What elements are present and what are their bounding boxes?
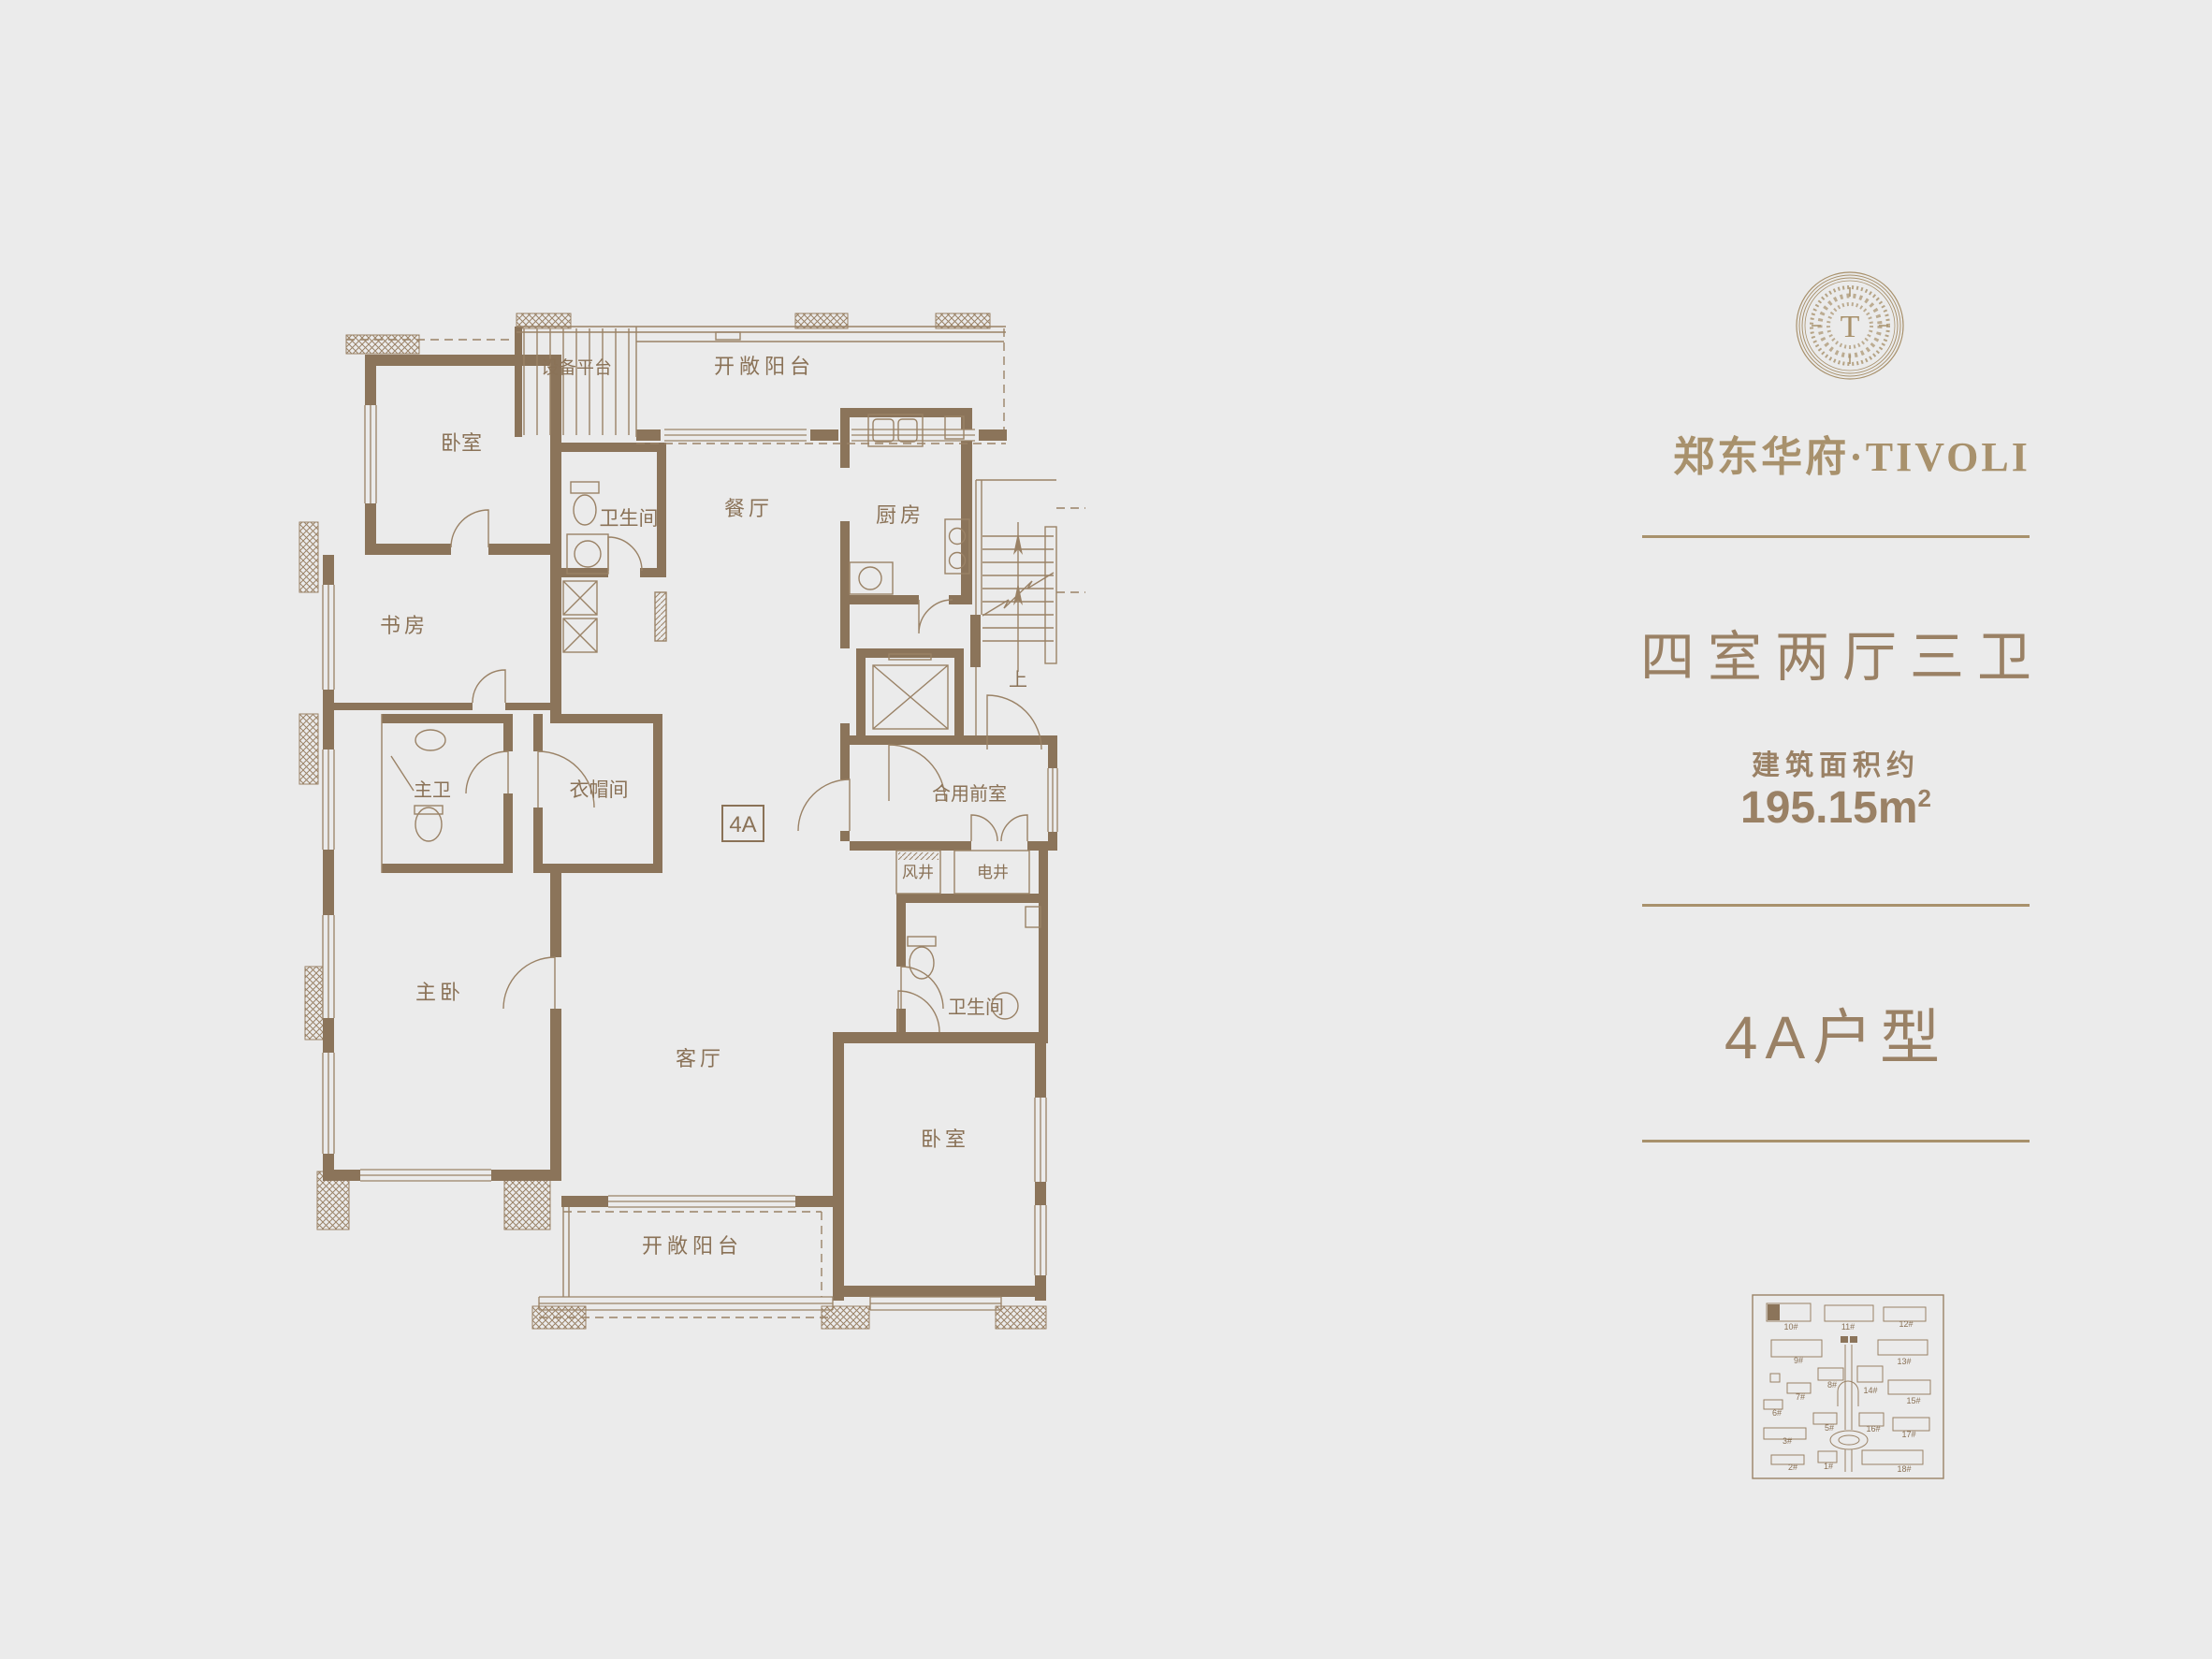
building-label: 9#: [1794, 1356, 1803, 1365]
building-label: 5#: [1825, 1423, 1834, 1433]
room-label-open-balcony-bottom: 开敞阳台: [642, 1234, 743, 1258]
stairs-up-label: 上: [1009, 669, 1027, 691]
area-label: 建筑面积约: [1621, 742, 2051, 783]
room-label-kitchen: 厨房: [876, 503, 924, 527]
building-label: 11#: [1841, 1322, 1855, 1332]
room-label-bedroom-top: 卧室: [441, 431, 482, 455]
brand-name: 郑东华府·TIVOLI: [1621, 423, 2083, 483]
room-label-living-room: 客厅: [676, 1047, 724, 1070]
building-label: 13#: [1897, 1357, 1911, 1366]
building-label: 8#: [1827, 1380, 1837, 1390]
room-labels: 卧室 设备平台 开敞阳台 卫生间 餐厅 厨房 书房 主卫 衣帽间 合用前室 风井…: [380, 355, 1027, 1258]
divider-bottom: [1642, 1140, 2030, 1142]
unit-title: 4A户型: [1621, 990, 2051, 1076]
unit-badge: 4A: [722, 806, 764, 841]
area-value: 195.15m2: [1621, 782, 2051, 834]
room-label-bathroom-top: 卫生间: [600, 508, 659, 530]
building-label: 17#: [1901, 1430, 1915, 1439]
construction-lines: [382, 327, 1056, 1297]
rooms-title: 四室两厅三卫: [1621, 613, 2051, 691]
area-number: 195.15m: [1740, 783, 1918, 833]
brand-logo: T: [1795, 270, 1905, 381]
room-label-cloakroom: 衣帽间: [570, 779, 629, 801]
floorplan-brochure-page: 4A 卧室 设备平台 开敞阳台 卫生间 餐厅 厨房 书房 主卫 衣帽间 合用前室…: [0, 0, 2212, 1659]
room-label-shared-vestibule: 合用前室: [932, 783, 1007, 805]
door-arcs: [451, 510, 1041, 1032]
building-label: 10#: [1783, 1322, 1797, 1332]
site-map-highlight: [1768, 1304, 1780, 1320]
room-label-open-balcony-top: 开敞阳台: [714, 355, 815, 378]
windows: [323, 405, 1057, 1310]
room-label-equipment-platform: 设备平台: [541, 357, 612, 378]
site-map: 10# 11# 12# 9# 13# 8# 14# 7# 15# 6# 5# 1…: [1752, 1294, 1944, 1479]
building-label: 6#: [1772, 1408, 1782, 1418]
building-label: 14#: [1863, 1386, 1877, 1395]
room-label-bedroom-lower: 卧室: [921, 1128, 969, 1151]
building-label: 18#: [1897, 1464, 1911, 1474]
floor-plan: 4A 卧室 设备平台 开敞阳台 卫生间 餐厅 厨房 书房 主卫 衣帽间 合用前室…: [290, 312, 1085, 1332]
building-label: 2#: [1788, 1463, 1797, 1472]
building-label: 16#: [1866, 1424, 1880, 1433]
room-label-study: 书房: [380, 614, 429, 637]
building-label: 1#: [1824, 1462, 1833, 1471]
building-label: 3#: [1783, 1436, 1792, 1446]
room-label-electric-shaft: 电井: [977, 864, 1009, 881]
floor-plan-svg: 4A 卧室 设备平台 开敞阳台 卫生间 餐厅 厨房 书房 主卫 衣帽间 合用前室…: [290, 312, 1085, 1332]
unit-badge-label: 4A: [729, 812, 756, 837]
room-label-bathroom-lower: 卫生间: [948, 997, 1004, 1018]
room-label-master-bathroom: 主卫: [414, 779, 451, 801]
area-superscript: 2: [1918, 784, 1931, 812]
divider-top: [1642, 535, 2030, 538]
building-label: 7#: [1796, 1392, 1805, 1402]
room-label-dining-room: 餐厅: [724, 497, 773, 520]
building-label: 12#: [1899, 1319, 1913, 1329]
room-label-master-bedroom: 主卧: [415, 981, 464, 1004]
room-label-wind-shaft: 风井: [902, 864, 934, 881]
brand-monogram: T: [1841, 310, 1860, 344]
building-label: 15#: [1906, 1396, 1920, 1405]
divider-middle: [1642, 904, 2030, 907]
